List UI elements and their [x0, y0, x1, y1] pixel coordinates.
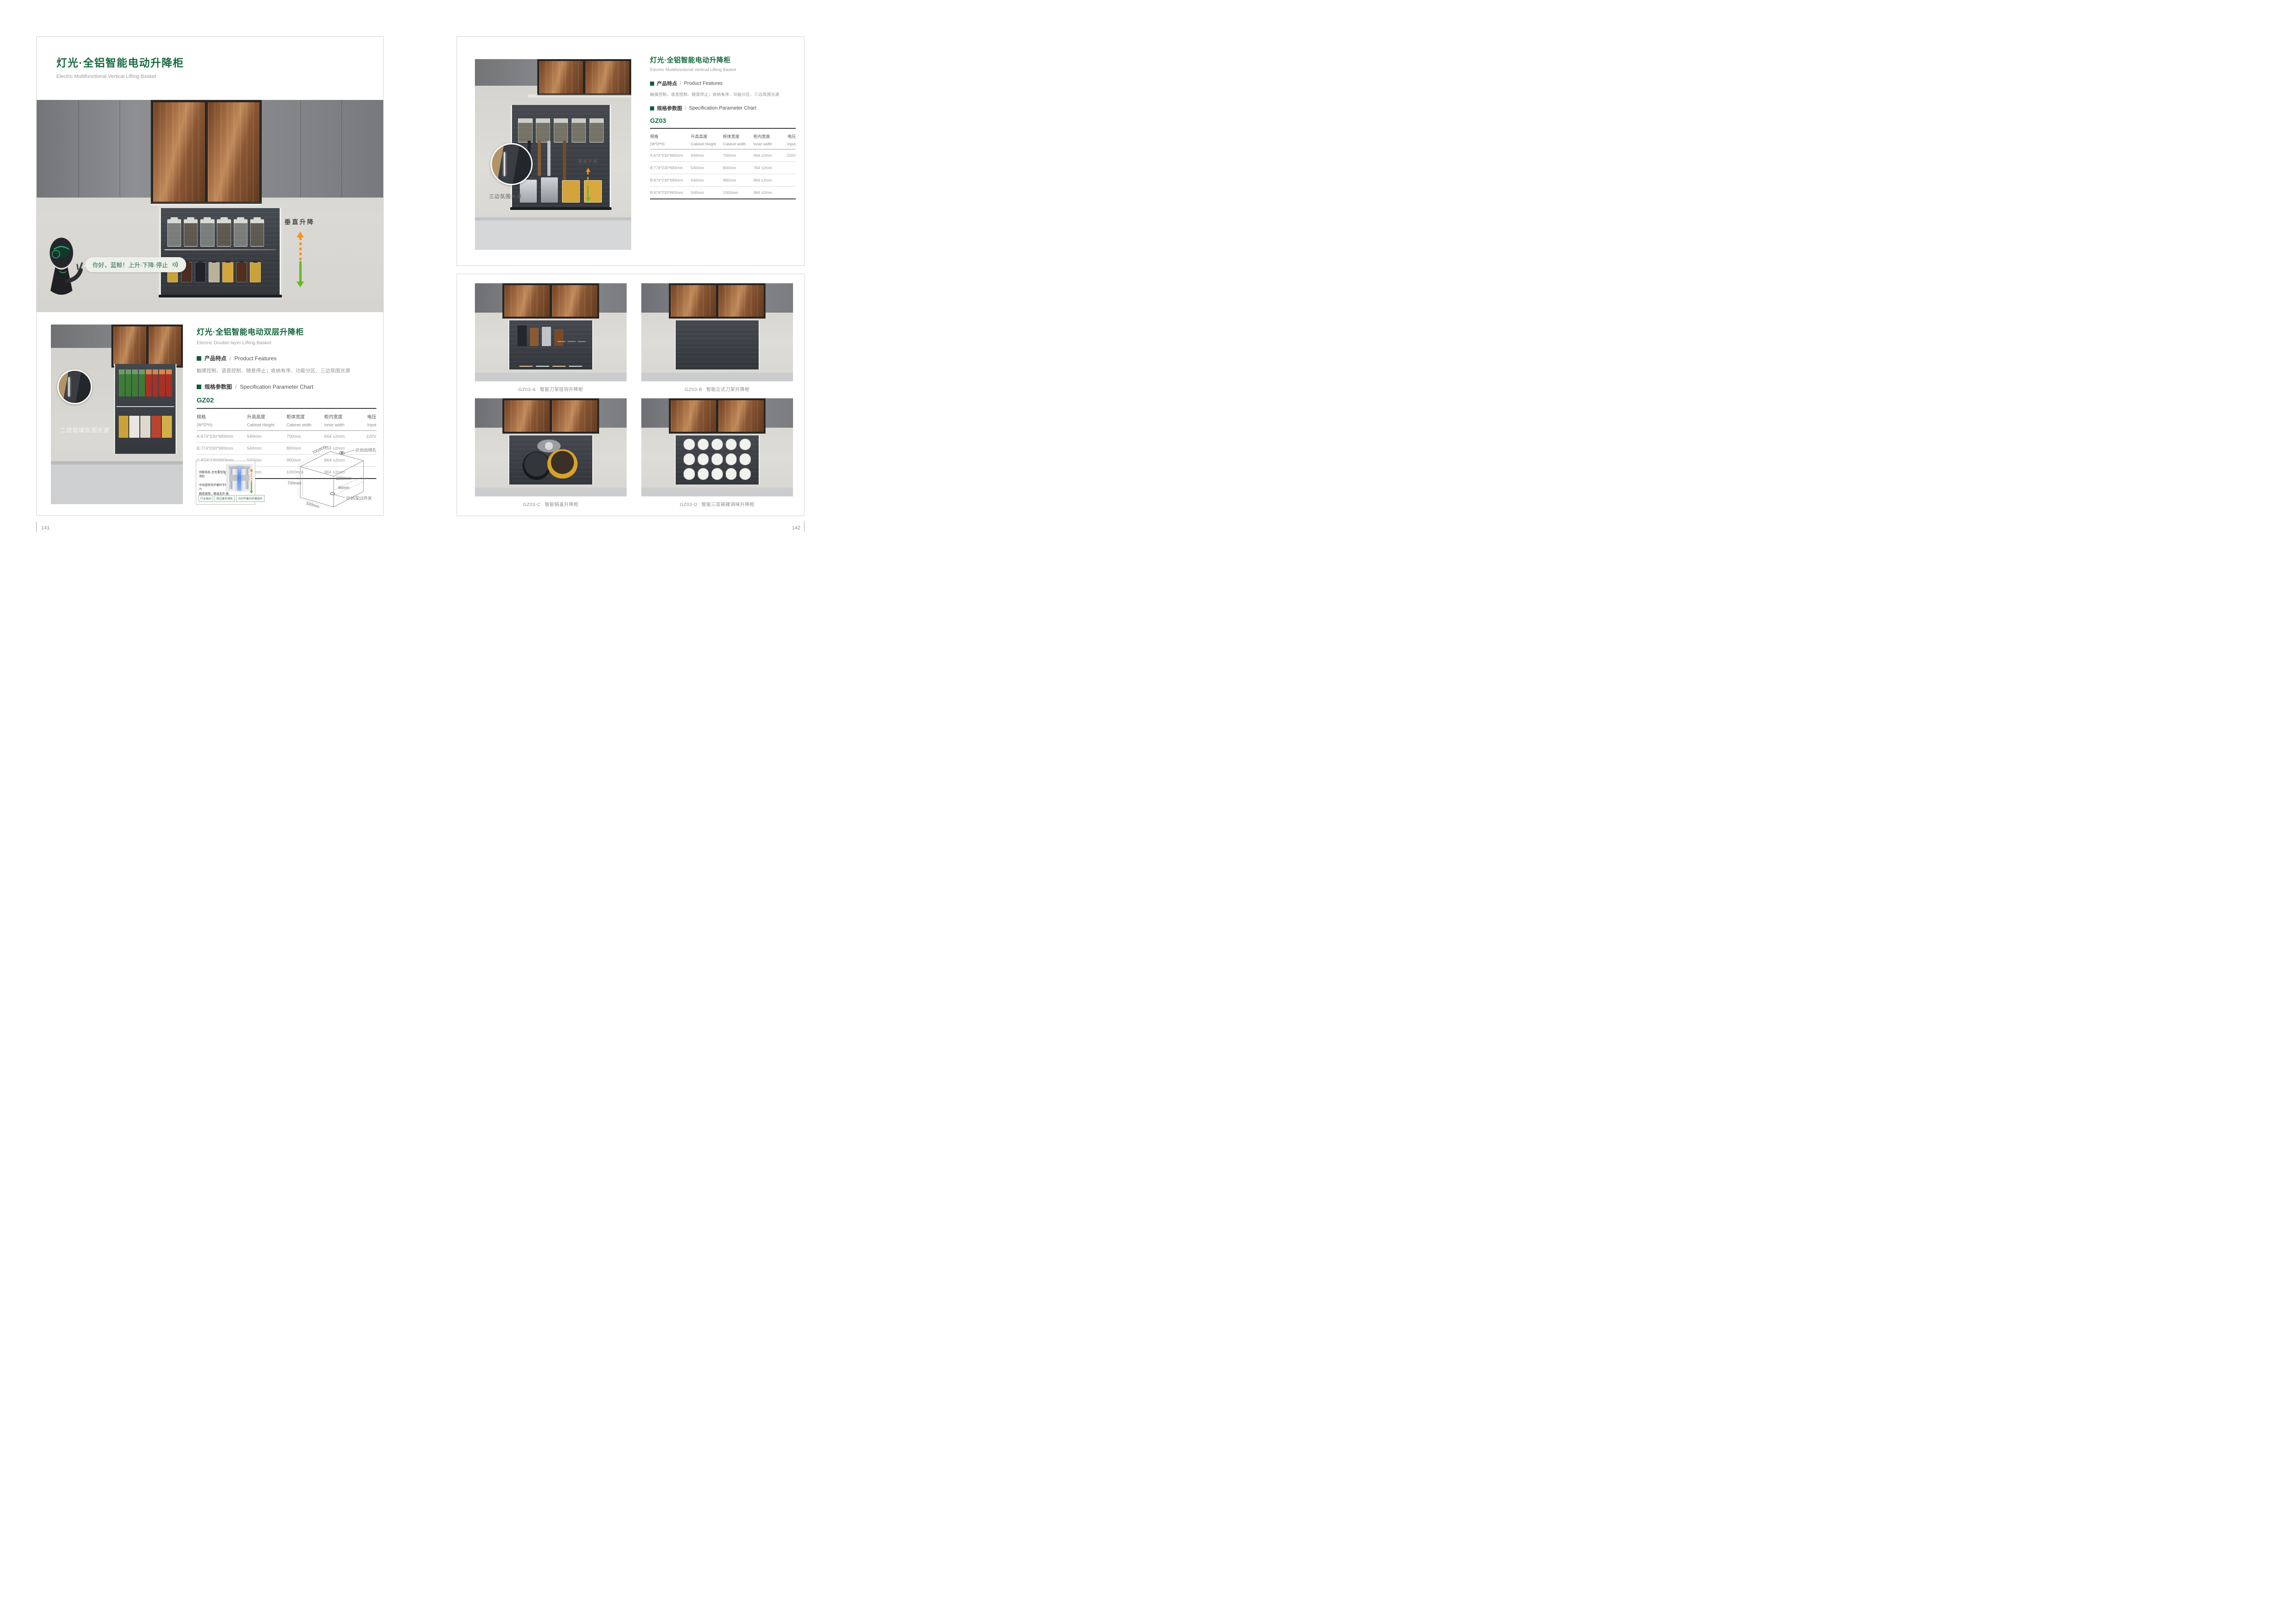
amber-glass-cabinet	[669, 398, 766, 434]
plate-row	[682, 468, 752, 480]
features-text: 触摸控制、语音控制、随意停止；收纳有序、功能分区、三边氛围光源	[197, 367, 376, 374]
juice-box	[153, 369, 159, 396]
juice-box	[126, 369, 132, 396]
countertop	[475, 373, 627, 381]
spec-heading: 规格参数图 / Specification Parameter Chart	[197, 383, 376, 391]
product-photo	[641, 398, 793, 496]
spice-jar	[209, 262, 219, 282]
bottle-row	[684, 326, 750, 341]
juice-box	[132, 369, 138, 396]
mechanism-image	[226, 464, 253, 491]
cabinet-door	[585, 61, 630, 94]
juice-box-row	[118, 369, 172, 396]
spec-table-gz03: 规格(W*D*H) 升高高度Cabinet Height 柜体宽度Cabinet…	[650, 128, 796, 199]
footer-divider	[36, 522, 37, 532]
snack-box	[162, 416, 172, 438]
hero-photo: 你好，蓝鲸！上升·下降·停止 垂直升降	[37, 100, 383, 312]
product-code: GZ03-D	[680, 502, 698, 507]
product-card-gz03a: GZ03-A智能刀架挂钩升降柜	[475, 283, 627, 392]
cabinet-door	[670, 285, 716, 317]
hanging-utensil	[518, 325, 527, 346]
cabinet-door	[504, 285, 550, 317]
right-page-top: 三边氛围光源 垂直升降 灯光·全铝智能电动升降柜 Electric Multif…	[457, 36, 804, 266]
dim-top-label: 700/800/900/1000mm	[311, 446, 348, 455]
dim-hole-label: ∅35出线孔	[355, 447, 376, 452]
spice-jar-row	[518, 113, 604, 143]
table-row: B:774*230*683mm540mm800mm764 ±2mm	[650, 162, 796, 174]
spec-heading-zh: 规格参数图	[204, 383, 232, 391]
features-text: 触摸控制、语音控制、随意停止；收纳有序、功能分区、三边氛围光源	[650, 91, 796, 97]
countertop	[475, 488, 627, 496]
table-row: A:674*230*683mm540mm700mm664 ±2mm220V	[650, 149, 796, 162]
col-header: 规格(W*D*H)	[650, 132, 691, 146]
plate	[739, 453, 750, 465]
table-row: B:874*230*683mm540mm900mm864 ±2mm	[650, 174, 796, 187]
glass-jar	[217, 219, 231, 246]
page-subtitle: Electric Multifunctional Vertical Liftin…	[56, 74, 184, 79]
product-card-gz03c: GZ03-C智能锅盖升降柜	[475, 398, 627, 507]
page-number-right: 142	[787, 525, 800, 531]
cabinet-door	[207, 102, 260, 202]
canister	[569, 366, 582, 367]
table-row: A:674*230*683mm540mm700mm664 ±2mm220V	[197, 431, 376, 443]
amber-glass-cabinet	[537, 59, 631, 95]
features-heading-en: Product Features	[234, 355, 276, 362]
product-card-gz03b: GZ03-B智能立式刀架升降柜	[641, 283, 793, 392]
dashed-segment	[587, 172, 589, 186]
product-caption: GZ03-B智能立式刀架升降柜	[641, 385, 793, 392]
photo-callout-label: 二层玻璃氛围光源	[60, 425, 110, 434]
dim-depth-label: 330mm	[305, 501, 320, 509]
dashed-segment	[251, 471, 252, 482]
cabinet-seam	[300, 100, 301, 198]
spec-heading: 规格参数图 / Specification Parameter Chart	[650, 105, 796, 112]
left-page: 灯光·全铝智能电动升降柜 Electric Multifunctional Ve…	[36, 36, 384, 516]
basket-top-shelf	[166, 215, 275, 247]
spice-jar-row	[557, 327, 586, 342]
cabinet-seam	[78, 100, 79, 198]
countertop	[475, 217, 631, 250]
cabinet-door	[539, 61, 584, 94]
dashed-segment	[299, 237, 302, 261]
snack-box	[119, 416, 129, 438]
amber-glass-cabinet	[111, 325, 183, 368]
spice-jar	[236, 262, 247, 282]
glass-jar	[167, 219, 182, 246]
product-caption: GZ03-D智能三层碗碟调味升降柜	[641, 501, 793, 507]
spice-jar	[518, 118, 532, 143]
photo-callout-label: 三边氛围光源	[489, 193, 522, 200]
arrow-up-icon	[297, 231, 304, 237]
plate	[739, 468, 750, 480]
table-row: B:974*230*683mm540mm1000mm964 ±2mm	[650, 187, 796, 198]
spice-jar	[536, 118, 550, 143]
spice-jar	[557, 341, 566, 342]
product-name: 智能刀架挂钩升降柜	[540, 387, 584, 392]
cabinet-door	[670, 400, 716, 432]
dim-inner-label: 220mm	[336, 476, 351, 481]
glass-shelf	[116, 406, 174, 407]
lifting-basket	[675, 435, 760, 484]
product-card-gz03d: GZ03-D智能三层碗碟调味升降柜	[641, 398, 793, 507]
amber-glass-cabinet	[669, 283, 766, 319]
features-heading-zh: 产品特点	[204, 354, 226, 362]
center-screw-column	[237, 467, 241, 490]
product-code: GZ03-A	[518, 387, 536, 392]
glass-shelf	[165, 249, 276, 250]
hanging-utensil	[542, 327, 551, 346]
col-header: 电压Input	[358, 413, 376, 427]
juice-box	[159, 369, 165, 396]
basket-base	[510, 207, 612, 210]
cabinet-door	[113, 326, 146, 366]
lift-arrows	[297, 231, 304, 287]
slash-separator: /	[230, 355, 231, 362]
product-caption: GZ03-A智能刀架挂钩升降柜	[475, 385, 627, 392]
features-heading-en: Product Features	[684, 81, 722, 86]
page-number-left: 141	[41, 525, 50, 531]
vertical-lift-label: 垂直升降	[578, 158, 598, 164]
juice-box	[139, 369, 145, 396]
plate	[711, 439, 722, 451]
plate	[698, 439, 709, 451]
cabinet-door	[551, 285, 598, 317]
canister	[562, 180, 580, 203]
voice-command-bubble: 你好，蓝鲸！上升·下降·停止	[85, 257, 186, 272]
glass-jar	[250, 219, 264, 246]
double-layer-basket	[114, 364, 176, 454]
vertical-lift-label: 垂直升降	[285, 217, 315, 226]
cabinet-door	[504, 400, 550, 432]
juice-box	[146, 369, 152, 396]
cabinet-door	[551, 400, 598, 432]
cabinet-seam	[120, 100, 120, 198]
col-header: 柜体宽度Cabinet width	[723, 132, 754, 146]
solid-segment	[251, 482, 252, 491]
canister	[519, 366, 533, 367]
page-title: 灯光·全铝智能电动升降柜	[650, 55, 796, 65]
plate	[711, 453, 722, 465]
cabinet-seam	[342, 100, 342, 198]
slash-separator: /	[680, 81, 681, 86]
product-name: 智能立式刀架升降柜	[706, 387, 750, 392]
footer-divider	[804, 522, 804, 532]
solid-segment	[587, 186, 589, 198]
plate-row	[682, 439, 752, 451]
spice-jar	[578, 341, 586, 342]
arrow-down-icon	[586, 198, 590, 202]
arrow-up-icon	[586, 168, 590, 172]
spec-heading-en: Specification Parameter Chart	[240, 384, 313, 390]
canister	[536, 366, 549, 367]
col-header: 规格(W*D*H)	[197, 413, 247, 427]
page-title: 灯光·全铝智能电动升降柜	[56, 54, 184, 70]
badge: 中间平衡同步螺旋杆	[236, 495, 264, 502]
table-header-row: 规格(W*D*H) 升高高度Cabinet Height 柜体宽度Cabinet…	[197, 409, 376, 431]
square-bullet-icon	[650, 106, 654, 110]
spice-jar	[572, 118, 586, 143]
spice-jar	[195, 262, 205, 282]
product-photo	[475, 283, 627, 381]
snack-box	[129, 416, 139, 438]
glass-jar	[184, 219, 198, 246]
knife-rack-row	[687, 349, 747, 365]
glass-jar	[234, 219, 248, 246]
canister	[520, 180, 537, 202]
cabinet-door	[153, 102, 205, 202]
spice-jar	[250, 262, 260, 282]
spice-jar	[590, 118, 604, 143]
arrow-down-icon	[250, 491, 253, 494]
slash-separator: /	[235, 384, 237, 390]
right-page-bottom: GZ03-A智能刀架挂钩升降柜 GZ03-B智能立式刀架升降柜	[457, 274, 804, 516]
amber-glass-cabinet	[502, 398, 600, 434]
lifting-basket	[675, 320, 760, 369]
plate	[711, 468, 722, 480]
badge: 两边重型滑轨	[215, 495, 235, 502]
model-code: GZ03	[650, 117, 796, 124]
lift-arrows	[584, 168, 592, 202]
spice-jar	[554, 118, 568, 143]
product-photo	[475, 398, 627, 496]
spec-heading-en: Specification Parameter Chart	[689, 105, 756, 111]
robot-illustration	[42, 236, 85, 311]
spec-heading-zh: 规格参数图	[657, 105, 682, 112]
led-strip	[151, 204, 262, 205]
countertop	[641, 373, 793, 381]
product-code: GZ03-B	[685, 387, 702, 392]
hanging-spatula	[538, 141, 541, 176]
features-heading: 产品特点 / Product Features	[650, 80, 796, 87]
col-header: 电压Input	[781, 132, 796, 146]
plate	[726, 439, 737, 451]
features-heading-zh: 产品特点	[657, 80, 677, 87]
right-page-text: 灯光·全铝智能电动升降柜 Electric Multifunctional Ve…	[650, 55, 796, 199]
snack-box-row	[118, 411, 172, 438]
plate	[683, 439, 694, 451]
left-page-header: 灯光·全铝智能电动升降柜 Electric Multifunctional Ve…	[56, 54, 184, 79]
section-subtitle: Electric Double-layer Lifting Basket	[197, 340, 376, 346]
juice-box	[166, 369, 172, 396]
dimension-diagram: 700/800/900/1000mm ∅35出线孔 700mm 220mm 46…	[286, 446, 378, 510]
detail-inset-circle	[57, 369, 92, 404]
led-strip	[528, 95, 631, 97]
col-header: 升高高度Cabinet Height	[691, 132, 723, 146]
amber-glass-cabinet	[502, 283, 600, 319]
gz03-photo: 三边氛围光源 垂直升降	[475, 59, 631, 250]
snack-box	[151, 416, 161, 438]
snack-box	[140, 416, 150, 438]
slash-separator: /	[685, 105, 686, 111]
col-header: 柜内宽度Inner width	[324, 413, 358, 427]
square-bullet-icon	[197, 385, 201, 389]
canister-row	[519, 354, 583, 367]
spice-jar	[222, 262, 233, 282]
product-photo	[641, 283, 793, 381]
gold-pan	[547, 449, 577, 479]
lifting-basket	[508, 320, 593, 369]
hanging-spatula	[563, 141, 566, 183]
product-caption: GZ03-C智能锅盖升降柜	[475, 501, 627, 507]
plate-row	[682, 453, 752, 465]
countertop	[641, 488, 793, 496]
spice-jar	[567, 341, 576, 342]
product-name: 智能锅盖升降柜	[545, 502, 579, 507]
detail-inset-circle	[490, 143, 533, 185]
dim-height-label: 700mm	[287, 481, 301, 485]
square-bullet-icon	[197, 356, 201, 361]
canister	[541, 177, 558, 203]
basket-base	[159, 295, 282, 297]
cabinet-door	[718, 285, 764, 317]
product-name: 智能三层碗碟调味升降柜	[702, 502, 755, 507]
hanging-utensils	[518, 325, 563, 346]
mechanism-diagram: 伺服电机·左右重型轴芯滑轨 中间旋转同步螺杆平衡受力 静密顺滑，静谧无声·载重量…	[196, 461, 255, 505]
plate	[739, 439, 750, 451]
lifting-basket	[508, 435, 593, 484]
voice-command-text: 你好，蓝鲸！上升·下降·停止	[93, 260, 168, 269]
hanging-utensil	[530, 328, 539, 346]
features-heading: 产品特点 / Product Features	[197, 354, 376, 362]
arrow-down-icon	[297, 281, 304, 287]
plate	[726, 468, 737, 480]
plate	[698, 468, 709, 480]
hanging-utensil	[547, 141, 551, 176]
model-code: GZ02	[197, 396, 376, 404]
cabinet-door	[148, 326, 182, 366]
dim-switch-label: ∅35深15开关	[346, 495, 372, 501]
black-pan	[523, 451, 551, 480]
section-title: 灯光·全铝智能电动双层升降柜	[197, 325, 376, 337]
amber-glass-cabinet	[151, 100, 262, 204]
solid-segment	[299, 261, 302, 281]
col-header: 柜体宽度Cabinet width	[286, 413, 324, 427]
plate	[726, 453, 737, 465]
countertop	[51, 461, 183, 504]
mechanism-badges: 行业独创 两边重型滑轨 中间平衡同步螺旋杆	[198, 495, 264, 502]
catalog-spread: 灯光·全铝智能电动升降柜 Electric Multifunctional Ve…	[0, 0, 830, 541]
dim-gap-label: 46mm	[338, 485, 349, 490]
col-header: 升高高度Cabinet Height	[247, 413, 286, 427]
plate	[683, 468, 694, 480]
badge: 行业独创	[198, 495, 213, 502]
cabinet-door	[718, 400, 764, 432]
sound-wave-icon	[171, 261, 179, 268]
square-bullet-icon	[650, 82, 654, 86]
glass-jar	[200, 219, 215, 246]
double-layer-basket-photo: 二层玻璃氛围光源	[51, 325, 183, 504]
table-header-row: 规格(W*D*H) 升高高度Cabinet Height 柜体宽度Cabinet…	[650, 129, 796, 149]
product-code: GZ03-C	[523, 502, 541, 507]
canister	[552, 366, 566, 367]
lifting-basket	[160, 208, 281, 297]
plate	[683, 453, 694, 465]
page-subtitle: Electric Multifunctional Vertical Liftin…	[650, 67, 796, 72]
col-header: 柜内宽度Inner width	[754, 132, 781, 146]
juice-box	[119, 369, 125, 396]
lift-arrows	[250, 468, 253, 494]
plate	[698, 453, 709, 465]
